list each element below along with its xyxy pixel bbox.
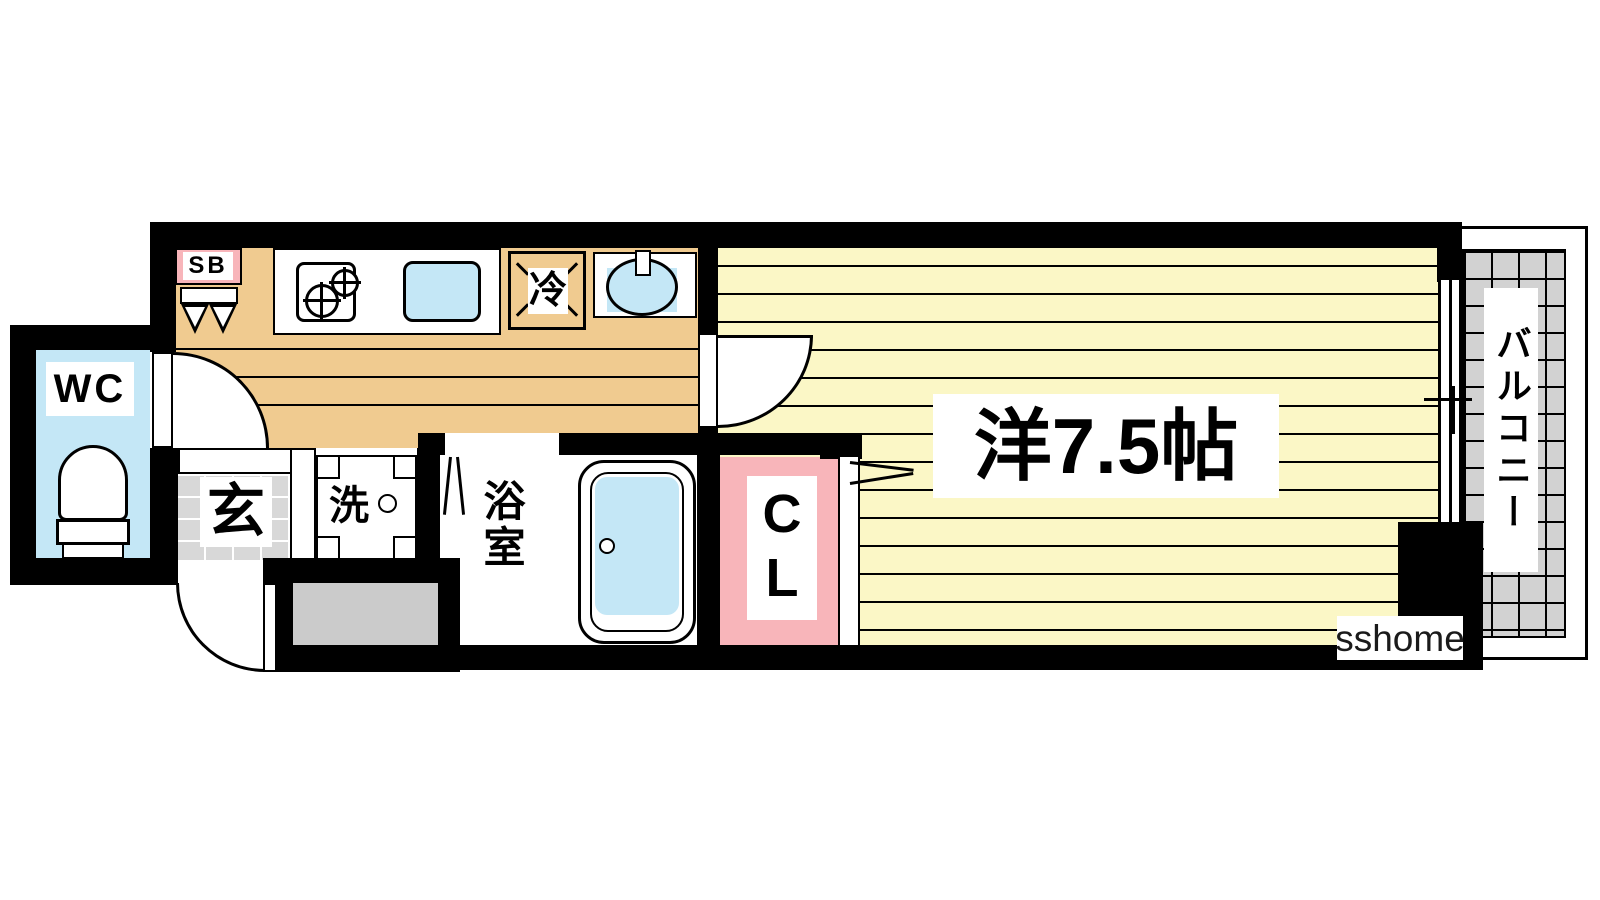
washer-faucet-icon xyxy=(378,494,397,513)
refrigerator-label: 冷 xyxy=(528,268,568,314)
wc-door-leaf xyxy=(152,352,173,448)
wall-wc-left xyxy=(10,325,36,585)
shoe-box-shelf xyxy=(180,287,238,304)
balcony-label: バルコニー xyxy=(1484,288,1538,572)
bathroom-label: 浴室 xyxy=(466,472,536,578)
watermark: sshome xyxy=(1337,616,1463,660)
bathroom-door-opening xyxy=(445,433,559,457)
pan-corner xyxy=(393,455,417,479)
window-tick-vertical xyxy=(1452,386,1455,434)
entrance-label: 玄 xyxy=(200,477,272,547)
wall-closet-corner xyxy=(820,433,862,459)
wall-kitchen-room-upper xyxy=(698,248,718,335)
entrance-door-leaf xyxy=(263,583,277,672)
shoe-box-label: SB xyxy=(183,252,233,280)
kitchen-sink-icon xyxy=(403,261,481,322)
stove-icon xyxy=(296,262,356,322)
closet-label: CL xyxy=(747,476,817,620)
floor-plan: WC SB 冷 洗 玄 浴室 CL 洋7.5帖 バルコニー sshome xyxy=(0,0,1600,900)
laundry-label: 洗 xyxy=(326,482,372,530)
burner-small-icon xyxy=(331,269,359,297)
basin-faucet-icon xyxy=(635,250,651,276)
toilet-base-icon xyxy=(62,543,124,559)
toilet-label: WC xyxy=(46,362,134,416)
wall-top xyxy=(150,222,1462,248)
wall-washer-bath xyxy=(417,448,440,560)
closet-door xyxy=(838,457,860,645)
utility-box xyxy=(293,583,438,645)
room-door-leaf xyxy=(698,333,718,428)
pan-corner xyxy=(393,536,417,560)
western-room-label: 洋7.5帖 xyxy=(933,394,1279,498)
window-tick-horizontal xyxy=(1424,398,1472,401)
wall-bottom xyxy=(440,645,1398,670)
wall-right-upper xyxy=(1437,222,1462,282)
entrance-door-swing-icon xyxy=(176,583,265,672)
entrance-step-horizontal xyxy=(178,448,292,474)
wall-wc-right xyxy=(150,448,178,560)
bathtub-drain-icon xyxy=(599,538,615,554)
wall-wc-bottom xyxy=(10,558,178,585)
toilet-bowl-icon xyxy=(58,445,128,521)
wall-bath-closet xyxy=(697,433,720,647)
pan-corner xyxy=(316,455,340,479)
toilet-tank-icon xyxy=(56,519,130,545)
pan-corner xyxy=(316,536,340,560)
entrance-step-vertical xyxy=(290,448,316,560)
